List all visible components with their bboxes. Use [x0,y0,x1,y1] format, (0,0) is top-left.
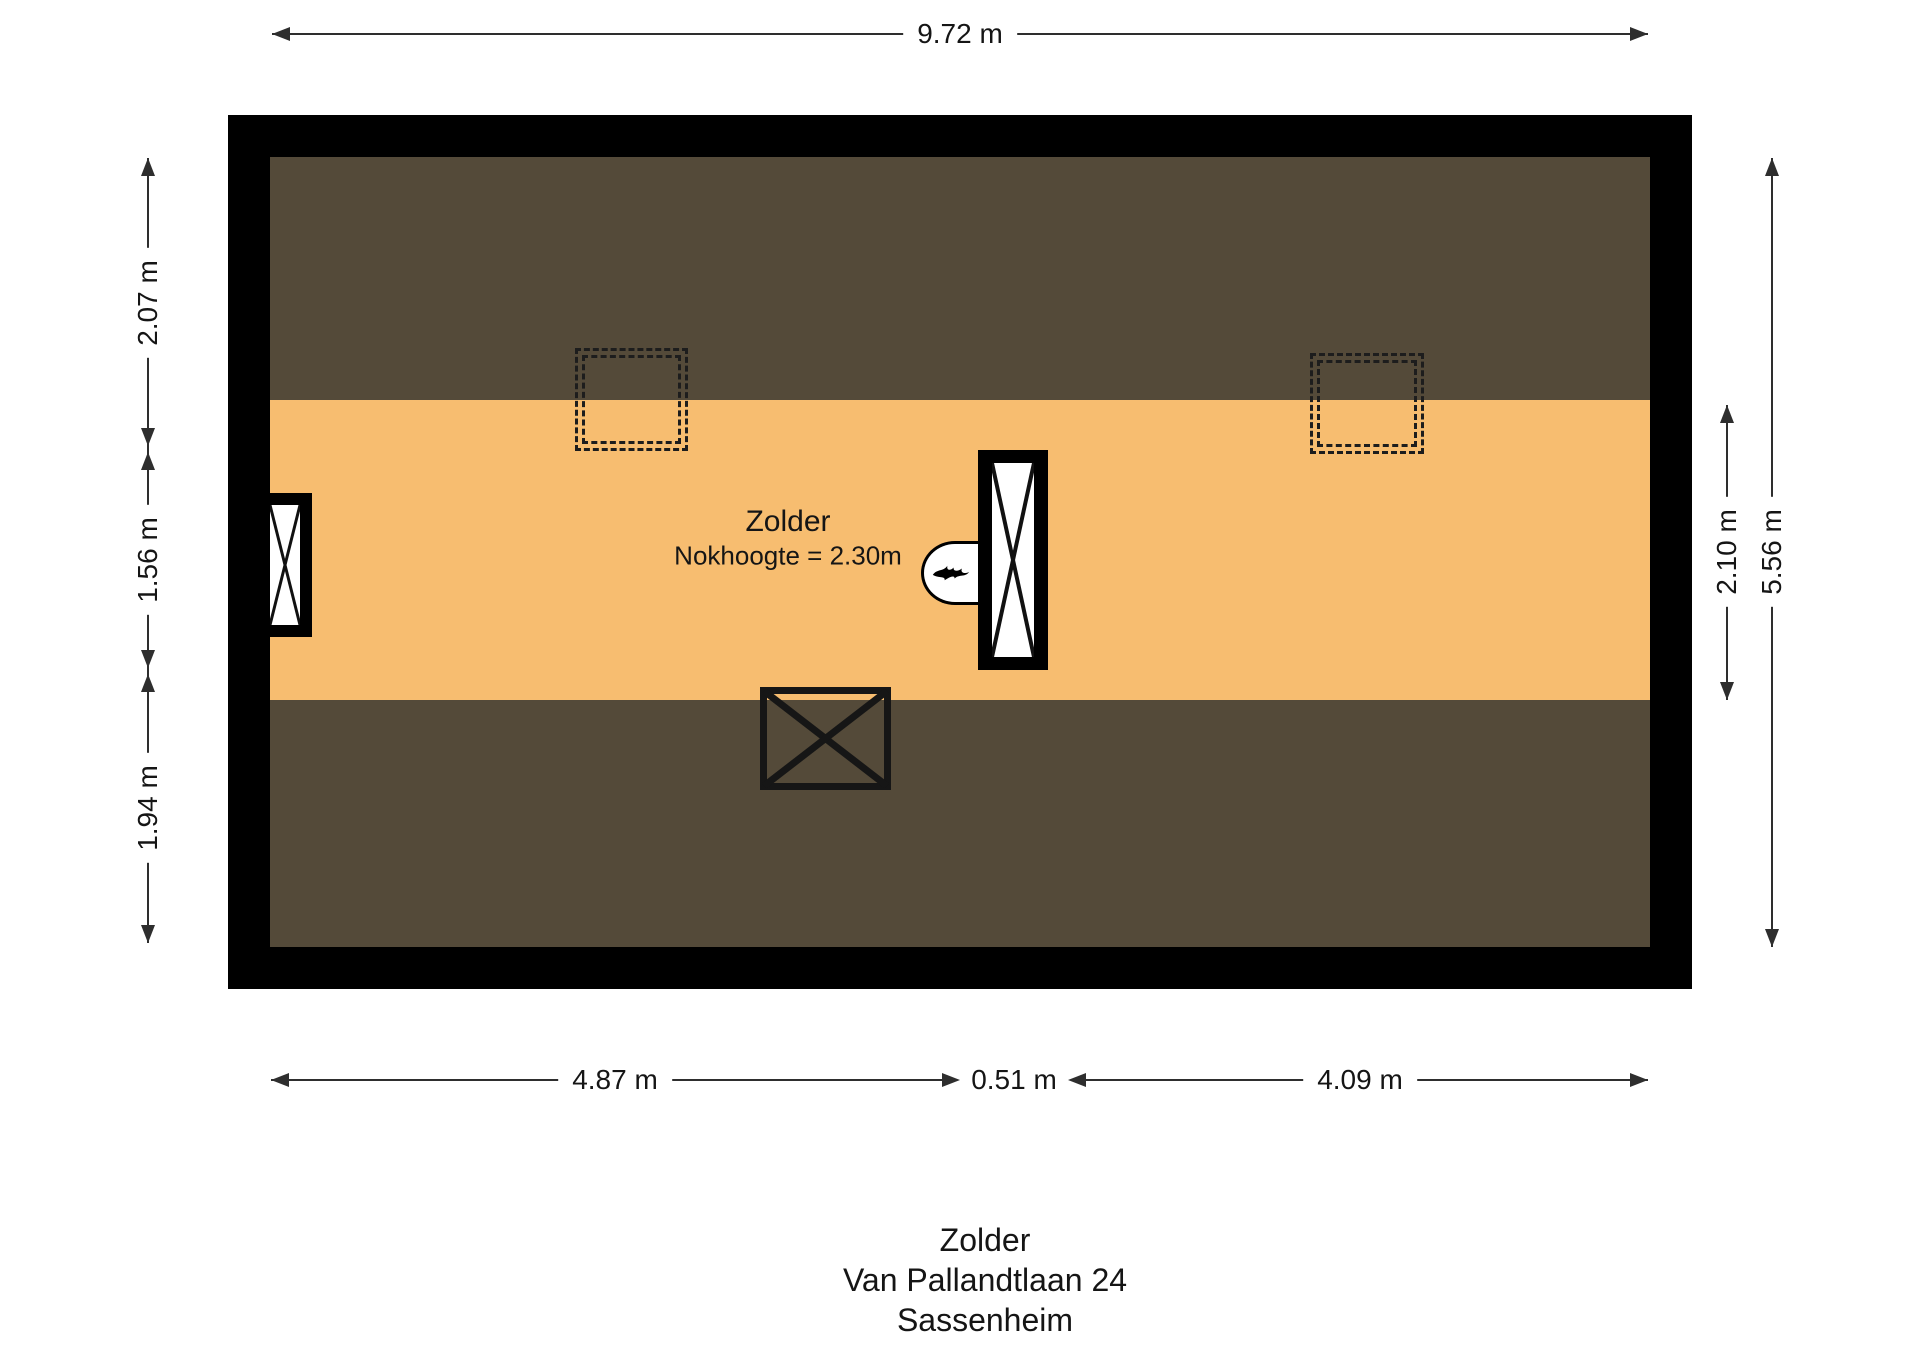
arrowhead-up-icon [1720,405,1734,423]
dimension-label: 4.87 m [558,1064,672,1096]
arrowhead-up-icon [141,452,155,470]
arrowhead-left-icon [271,1073,289,1087]
arrowhead-up-icon [141,158,155,176]
arrowhead-up-icon [1765,158,1779,176]
dimension-label: 2.07 m [132,248,164,358]
dimension-label: 4.09 m [1303,1064,1417,1096]
floorplan-page: Zolder Nokhoogte = 2.30m 9.72 m 2.07 m 1… [0,0,1920,1358]
dimension-label: 0.51 m [957,1064,1071,1096]
arrowhead-down-icon [1720,682,1734,700]
chimney [978,450,1048,670]
dimension-label: 9.72 m [903,18,1017,50]
arrowhead-down-icon [141,428,155,446]
shaft-cross-icon [992,463,1034,657]
dimension-label: 5.56 m [1756,497,1788,607]
chimney-shaft [992,463,1034,657]
stair-opening [760,687,891,790]
arrowhead-down-icon [141,650,155,668]
dimension-label: 2.10 m [1711,497,1743,607]
ridge-height-label: Nokhoogte = 2.30m [674,541,902,572]
arrowhead-down-icon [1765,929,1779,947]
arrowhead-right-icon [1630,1073,1648,1087]
room-name-label: Zolder [745,505,830,539]
arrowhead-right-icon [942,1073,960,1087]
arrowhead-left-icon [1068,1073,1086,1087]
arrowhead-right-icon [1630,27,1648,41]
arrowhead-left-icon [272,27,290,41]
dimension-label: 1.56 m [132,505,164,615]
flame-icon [931,559,971,587]
arrowhead-down-icon [141,925,155,943]
skylight-right [1310,353,1424,454]
title-room: Zolder [843,1220,1127,1260]
window-left-frame [240,493,312,637]
title-block: Zolder Van Pallandtlaan 24 Sassenheim [843,1220,1127,1340]
stair-opening-cross-icon [760,687,891,790]
skylight-left [575,348,688,451]
arrowhead-up-icon [141,674,155,692]
dimension-label: 1.94 m [132,753,164,863]
title-address: Van Pallandtlaan 24 [843,1260,1127,1300]
window-left [270,505,300,625]
window-cross-icon [270,505,300,625]
title-city: Sassenheim [843,1300,1127,1340]
